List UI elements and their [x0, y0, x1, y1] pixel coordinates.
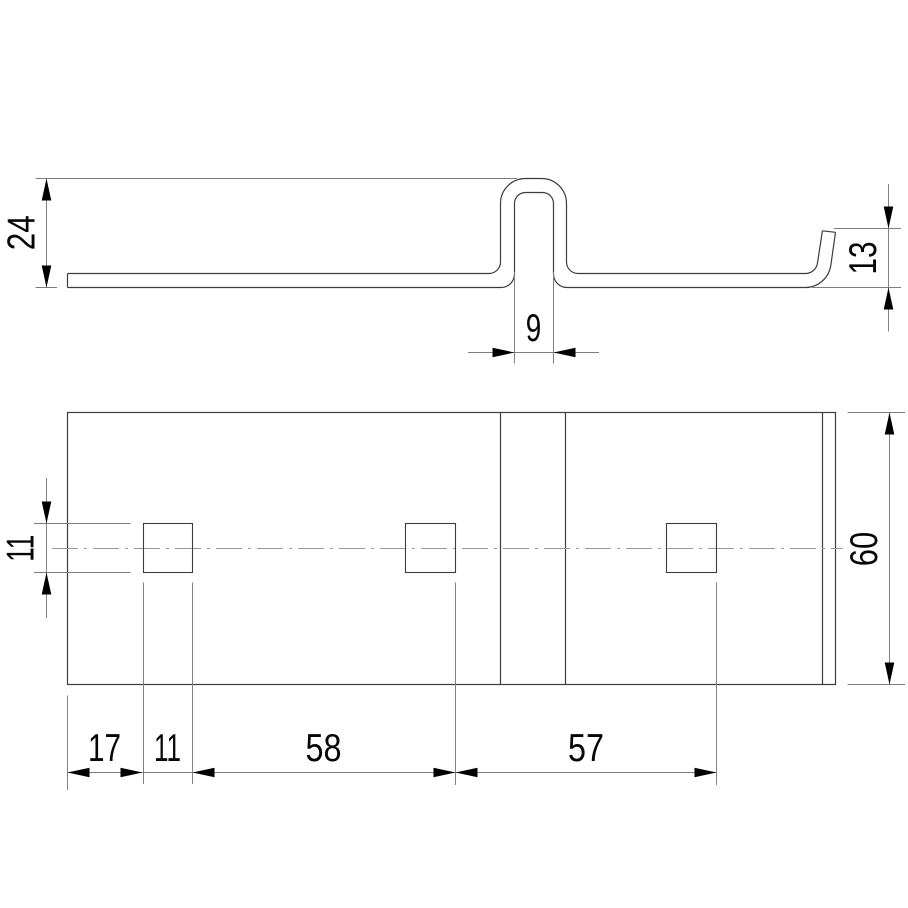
svg-text:9: 9: [526, 307, 542, 350]
svg-text:57: 57: [568, 727, 604, 770]
svg-text:24: 24: [1, 215, 44, 250]
svg-text:58: 58: [306, 727, 342, 770]
svg-text:60: 60: [843, 532, 886, 567]
svg-text:13: 13: [842, 242, 885, 275]
svg-text:17: 17: [88, 727, 121, 770]
svg-text:11: 11: [154, 727, 181, 770]
svg-text:11: 11: [0, 535, 43, 562]
